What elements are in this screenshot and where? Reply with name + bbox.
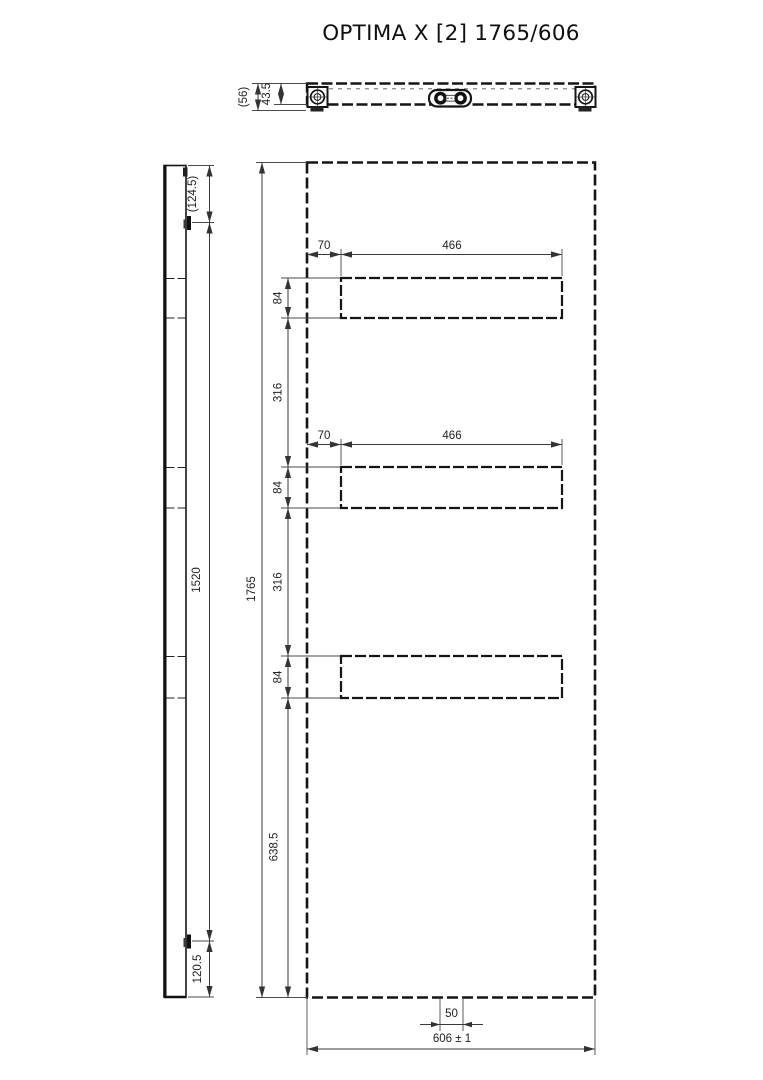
dim-bracket-top-offset-label: (124.5) [187,176,199,213]
dim-slot1-height-label: 84 [273,291,285,304]
dim-slot2-height-label: 84 [273,481,285,494]
side-view-outline [164,166,186,998]
side-view-dimensions: (124.5) 1520 120.5 [187,166,214,998]
notch-arrow-right-icon [463,1022,472,1027]
dim-gap23-label: 316 [273,572,285,591]
towel-slot-1 [341,278,562,318]
dim-slot1-width-label: 466 [442,240,461,252]
dim-depth-overall-label: (56) [238,87,250,108]
dim-slot2-width-label: 466 [442,430,461,442]
notch-arrow-left-icon [431,1022,440,1027]
dim-bottom-distance-label: 638.5 [269,833,281,862]
dim-slot3-height-label: 84 [273,670,285,683]
dim-depth-body-label: 43.5 [261,83,273,105]
dim-height-label: 1765 [246,576,258,602]
towel-slot-3 [341,656,562,698]
dim-width-label: 606 ± 1 [433,1033,471,1045]
technical-drawing-page: OPTIMA X [2] 1765/606 [0,0,763,1080]
dim-notch-label: 50 [445,1008,458,1020]
center-tapping-block [429,90,471,107]
dim-bracket-bottom-offset-label: 120.5 [192,955,204,984]
dim-gap12-label: 316 [273,383,285,402]
dim-slot2-offset-label: 70 [318,430,331,442]
towel-slot-2 [341,467,562,508]
side-view: (124.5) 1520 120.5 [164,165,214,997]
bottom-notch-dimension: 50 [420,998,483,1032]
dim-slot1-offset-label: 70 [318,240,331,252]
wall-bracket-left [308,87,328,112]
wall-bracket-right [576,87,596,112]
front-view: 70 466 70 466 84 316 [246,163,595,1056]
drawing-title: OPTIMA X [2] 1765/606 [322,21,580,46]
top-view: (56) 43.5 [238,83,596,112]
bracket-foot-left [311,107,324,112]
air-vent-stub [183,168,188,177]
radiator-drawing: OPTIMA X [2] 1765/606 [0,0,763,1080]
dim-bracket-spacing-label: 1520 [191,567,203,593]
bracket-foot-right [579,107,592,112]
top-view-dimensions: (56) 43.5 [238,83,307,111]
